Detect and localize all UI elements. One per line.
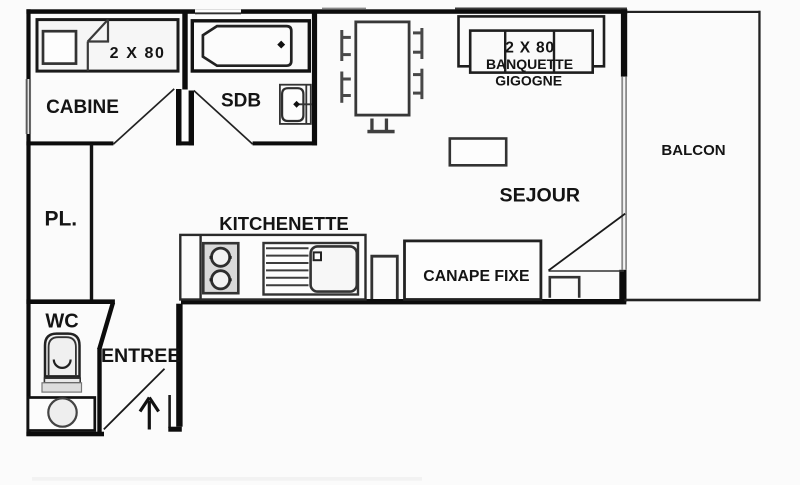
svg-text:BALCON: BALCON: [661, 142, 725, 159]
svg-text:PL.: PL.: [44, 207, 77, 230]
svg-text:BANQUETTE: BANQUETTE: [486, 56, 573, 72]
svg-text:GIGOGNE: GIGOGNE: [495, 72, 562, 88]
svg-text:CABINE: CABINE: [46, 97, 119, 118]
svg-text:2 X 80: 2 X 80: [110, 45, 166, 62]
svg-text:WC: WC: [45, 311, 78, 333]
svg-text:2 X 80: 2 X 80: [505, 39, 555, 56]
svg-text:SDB: SDB: [221, 90, 261, 111]
svg-text:ENTREE: ENTREE: [101, 345, 180, 367]
svg-text:SEJOUR: SEJOUR: [500, 184, 581, 206]
svg-text:KITCHENETTE: KITCHENETTE: [219, 213, 349, 234]
svg-text:CANAPE FIXE: CANAPE FIXE: [423, 268, 529, 285]
